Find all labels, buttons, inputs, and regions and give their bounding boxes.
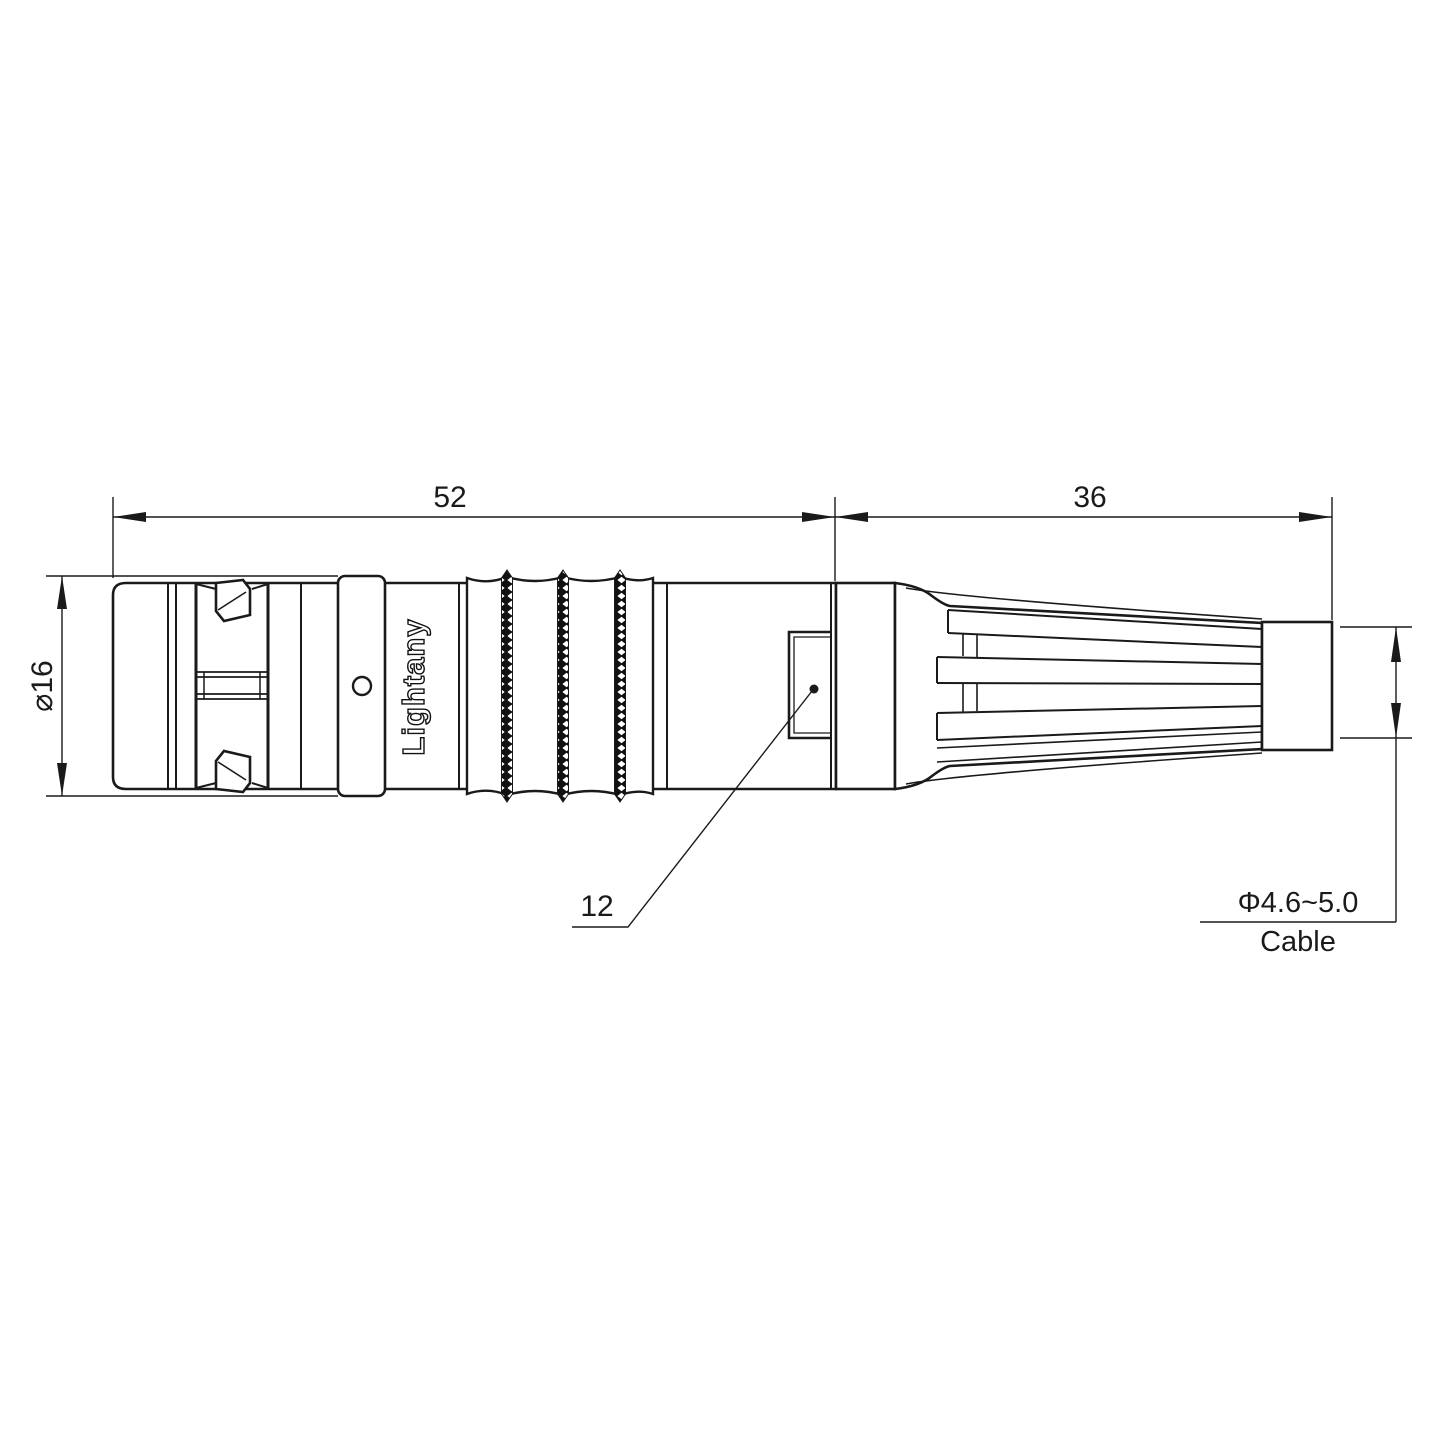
boot-collar [836, 583, 895, 789]
strain-relief-boot [836, 583, 1332, 789]
dim-label-cable-diameter: Φ4.6~5.0 [1238, 887, 1359, 919]
collar-ring [338, 576, 385, 796]
connector-body [113, 570, 836, 802]
brand-text: Lightany [396, 618, 431, 755]
dim-label-diameter16: ⌀16 [26, 660, 59, 711]
dim-label-36: 36 [1073, 481, 1106, 514]
collar-hole [353, 677, 371, 695]
dim-label-12: 12 [580, 890, 613, 923]
connector-technical-drawing: Lightany [0, 0, 1440, 1440]
dim-label-cable: Cable [1260, 926, 1336, 958]
boot-cone-outline [895, 583, 1262, 789]
dim-label-52: 52 [433, 481, 466, 514]
technical-drawing-page: Lightany [0, 0, 1440, 1440]
grip-section [467, 570, 653, 802]
cable-end-nut [1262, 622, 1332, 750]
